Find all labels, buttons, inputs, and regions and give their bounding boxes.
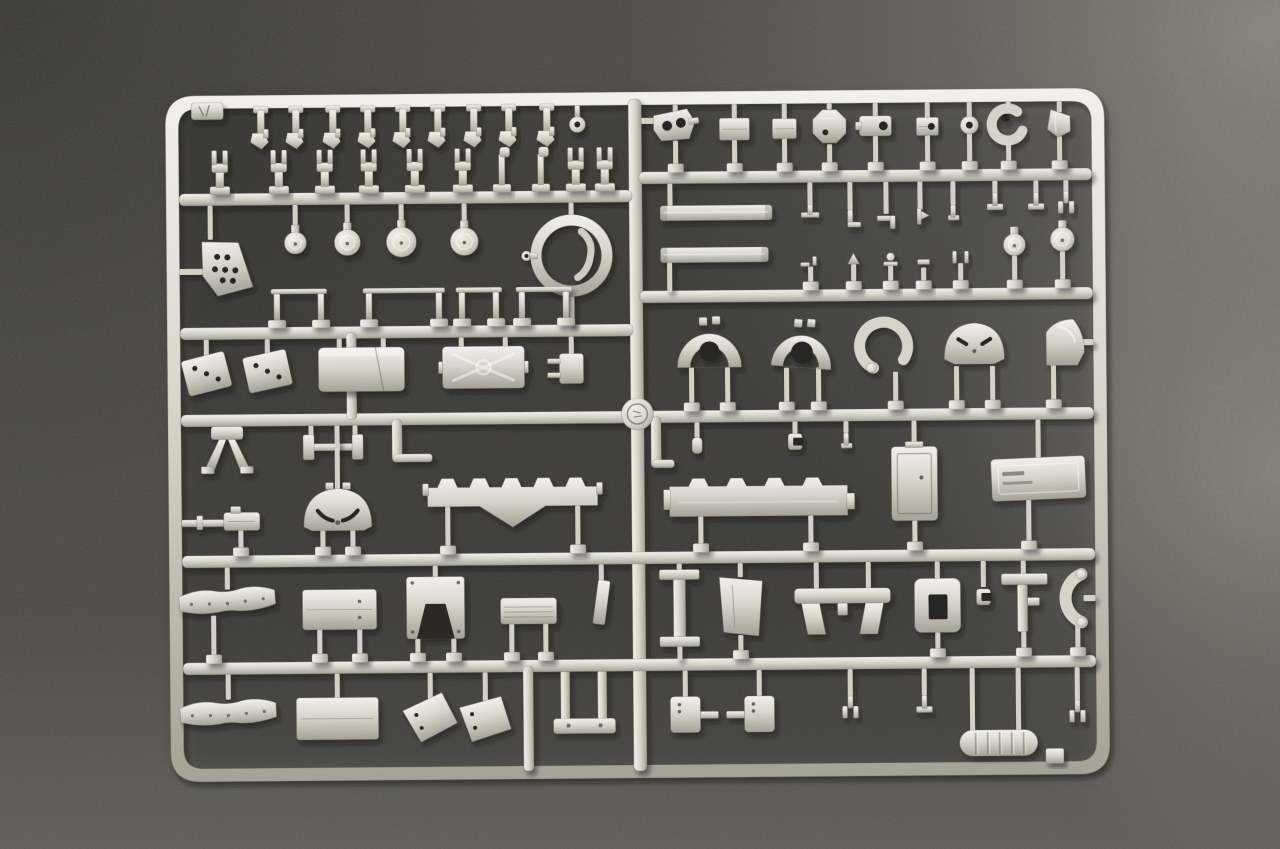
sprue-scene: [0, 0, 1280, 849]
model-kit-sprue-photograph: [0, 0, 1280, 849]
sprue-illustration: [0, 0, 1280, 849]
